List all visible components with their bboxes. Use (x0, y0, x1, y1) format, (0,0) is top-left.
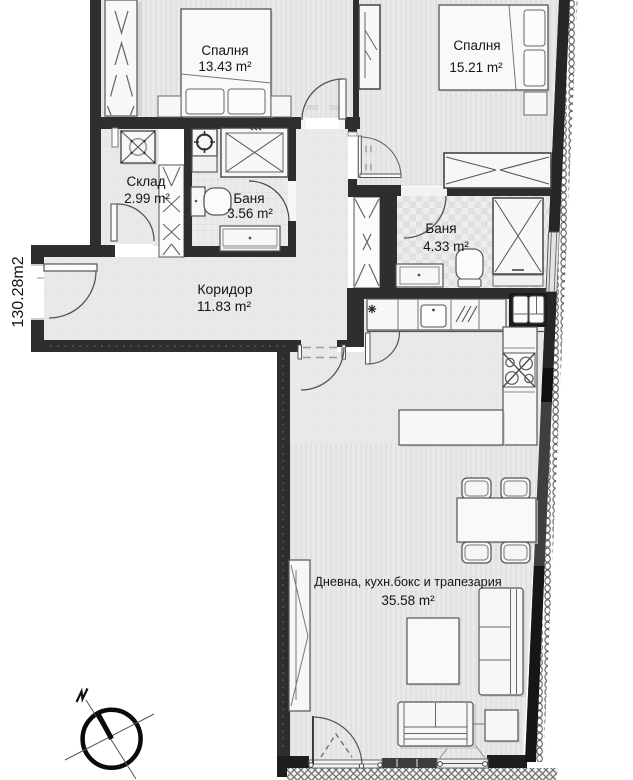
svg-text:13.43 m²: 13.43 m² (198, 59, 252, 74)
svg-text:35.58 m²: 35.58 m² (381, 593, 435, 608)
svg-text:Склад: Склад (126, 174, 165, 189)
svg-text:11.83 m²: 11.83 m² (197, 298, 252, 314)
svg-text:2.99 m²: 2.99 m² (124, 191, 170, 206)
svg-text:Коридор: Коридор (197, 281, 253, 297)
svg-text:Баня: Баня (425, 221, 456, 236)
svg-text:Спалня: Спалня (453, 38, 500, 53)
svg-text:Спалня: Спалня (201, 43, 248, 58)
svg-text:Баня: Баня (233, 191, 264, 206)
svg-text:130.28m2: 130.28m2 (10, 256, 27, 327)
svg-text:4.33 m²: 4.33 m² (423, 239, 469, 254)
svg-text:3.56 m²: 3.56 m² (227, 206, 273, 221)
svg-text:Дневна, кухн.бокс и трапезария: Дневна, кухн.бокс и трапезария (314, 575, 501, 589)
svg-text:15.21 m²: 15.21 m² (449, 60, 503, 75)
